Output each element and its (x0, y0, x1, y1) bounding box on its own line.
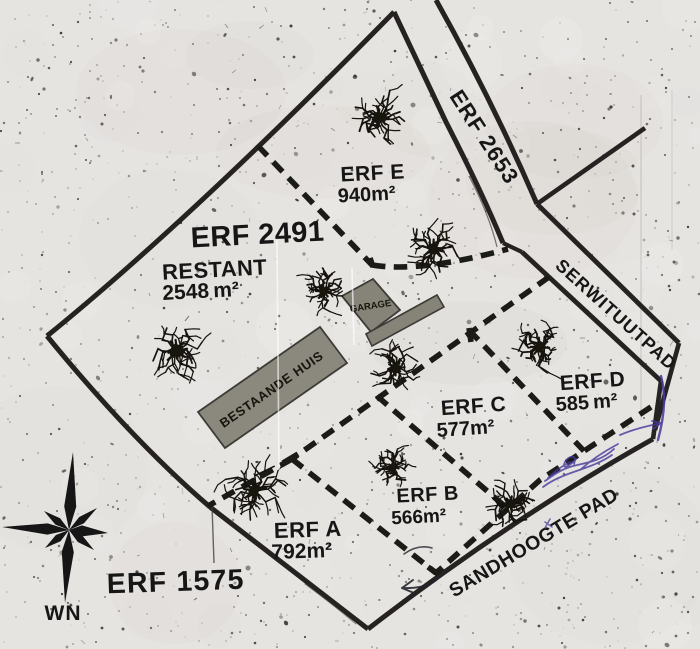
svg-text:577m²: 577m² (436, 416, 496, 442)
svg-text:566m²: 566m² (391, 506, 447, 530)
svg-text:ERF B: ERF B (396, 482, 460, 507)
svg-text:WN: WN (45, 602, 82, 625)
svg-text:2548 m²: 2548 m² (162, 278, 240, 305)
svg-text:940m²: 940m² (337, 182, 396, 207)
svg-text:ERF 1575: ERF 1575 (106, 564, 245, 601)
svg-text:585 m²: 585 m² (555, 390, 619, 416)
svg-text:ERF C: ERF C (440, 393, 507, 421)
svg-text:792m²: 792m² (271, 539, 332, 564)
